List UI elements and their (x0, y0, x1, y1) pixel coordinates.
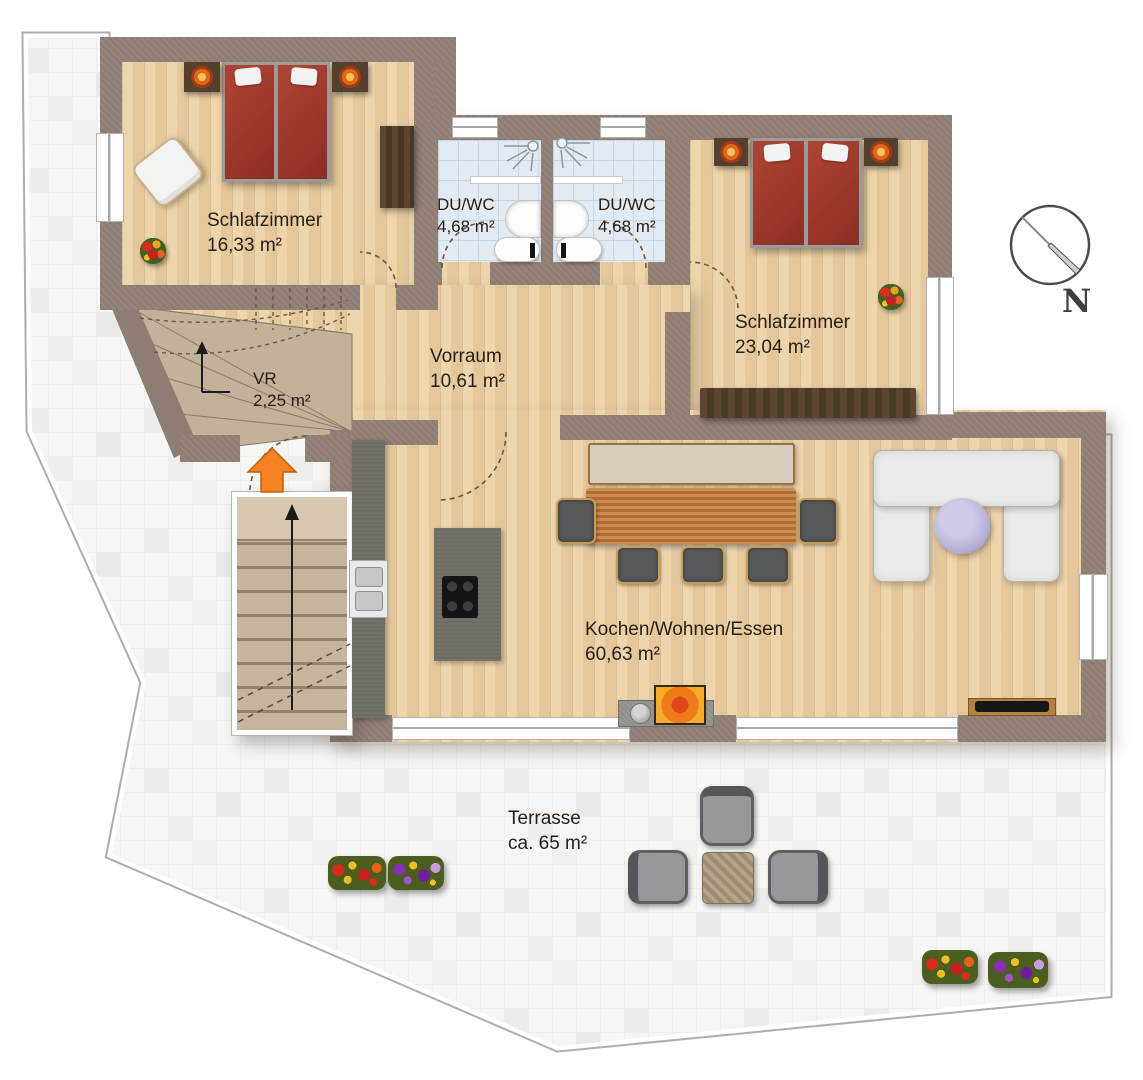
floor-plan: N Schlafzimmer16,33 m² DU/WC4,68 m² DU/W… (0, 0, 1143, 1080)
dining-chair (746, 546, 790, 584)
nightstand (864, 138, 898, 166)
wall (100, 37, 456, 62)
wall (305, 435, 355, 462)
compass-icon (1008, 203, 1092, 287)
toilet (556, 237, 602, 262)
wall (541, 140, 553, 262)
window (452, 117, 498, 138)
wall (100, 285, 360, 310)
flower-box (988, 952, 1048, 988)
wall (396, 285, 438, 310)
room-label-vorraum: Vorraum10,61 m² (430, 344, 505, 394)
wall (100, 62, 122, 133)
kitchen-island (434, 528, 501, 661)
wall (958, 715, 1106, 742)
outdoor-chair (628, 850, 688, 904)
window (392, 717, 630, 740)
washbasin (505, 200, 541, 238)
outdoor-chair (768, 850, 828, 904)
wall (490, 262, 600, 285)
flower-box (922, 950, 978, 984)
dining-chair (681, 546, 725, 584)
tv-lowboard (968, 698, 1056, 716)
stair-landing (237, 497, 347, 541)
dining-chair (798, 498, 838, 544)
wall (1081, 412, 1106, 574)
wall (560, 415, 952, 440)
dining-table (586, 488, 796, 544)
outdoor-table (702, 852, 754, 904)
wall (434, 62, 456, 117)
wall (414, 262, 442, 285)
dining-bench (588, 443, 795, 485)
flower-box (388, 856, 444, 890)
entrance-arrow-icon (248, 448, 296, 492)
nightstand (332, 62, 368, 92)
flower-pot (876, 282, 906, 312)
room-label-bath2: DU/WC4,68 m² (598, 194, 656, 239)
window (96, 133, 124, 222)
coffee-table (934, 498, 990, 554)
window (926, 277, 954, 415)
flower-pot (138, 236, 168, 266)
window (1079, 574, 1108, 660)
wall (665, 312, 690, 420)
dining-chair (556, 498, 596, 544)
wardrobe (380, 126, 414, 208)
wall (928, 115, 952, 277)
bath-shelf (470, 176, 541, 184)
nightstand (714, 138, 748, 166)
toilet (494, 237, 540, 262)
plant-icon (339, 66, 361, 88)
compass-north-label: N (1062, 282, 1091, 320)
sideboard (700, 388, 916, 418)
room-label-bedroom1: Schlafzimmer16,33 m² (207, 208, 322, 258)
wall (665, 140, 690, 262)
plant-icon (720, 141, 742, 163)
window (600, 117, 646, 138)
cooktop (442, 576, 478, 618)
room-label-bedroom2: Schlafzimmer23,04 m² (735, 310, 850, 360)
dining-chair (616, 546, 660, 584)
tv-icon (975, 701, 1049, 712)
double-bed-bedroom1 (222, 62, 330, 182)
wall (648, 262, 690, 285)
window (736, 717, 958, 740)
wall (100, 222, 122, 288)
double-bed-bedroom2 (750, 138, 862, 248)
room-label-terrace: Terrasseca. 65 m² (508, 806, 587, 856)
exterior-stairs (232, 492, 352, 735)
fireplace (654, 685, 706, 725)
plant-icon (191, 66, 213, 88)
chimney-pipe (630, 703, 651, 724)
bath-shelf (553, 176, 623, 184)
room-label-vr: VR2,25 m² (253, 368, 311, 413)
room-label-bath1: DU/WC4,68 m² (437, 194, 495, 239)
wall (660, 115, 952, 140)
kitchen-sink (349, 560, 388, 618)
outdoor-chair (700, 786, 754, 846)
flower-box (328, 856, 386, 890)
plant-icon (870, 141, 892, 163)
wall (180, 435, 240, 462)
room-label-living: Kochen/Wohnen/Essen60,63 m² (585, 617, 783, 667)
nightstand (184, 62, 220, 92)
